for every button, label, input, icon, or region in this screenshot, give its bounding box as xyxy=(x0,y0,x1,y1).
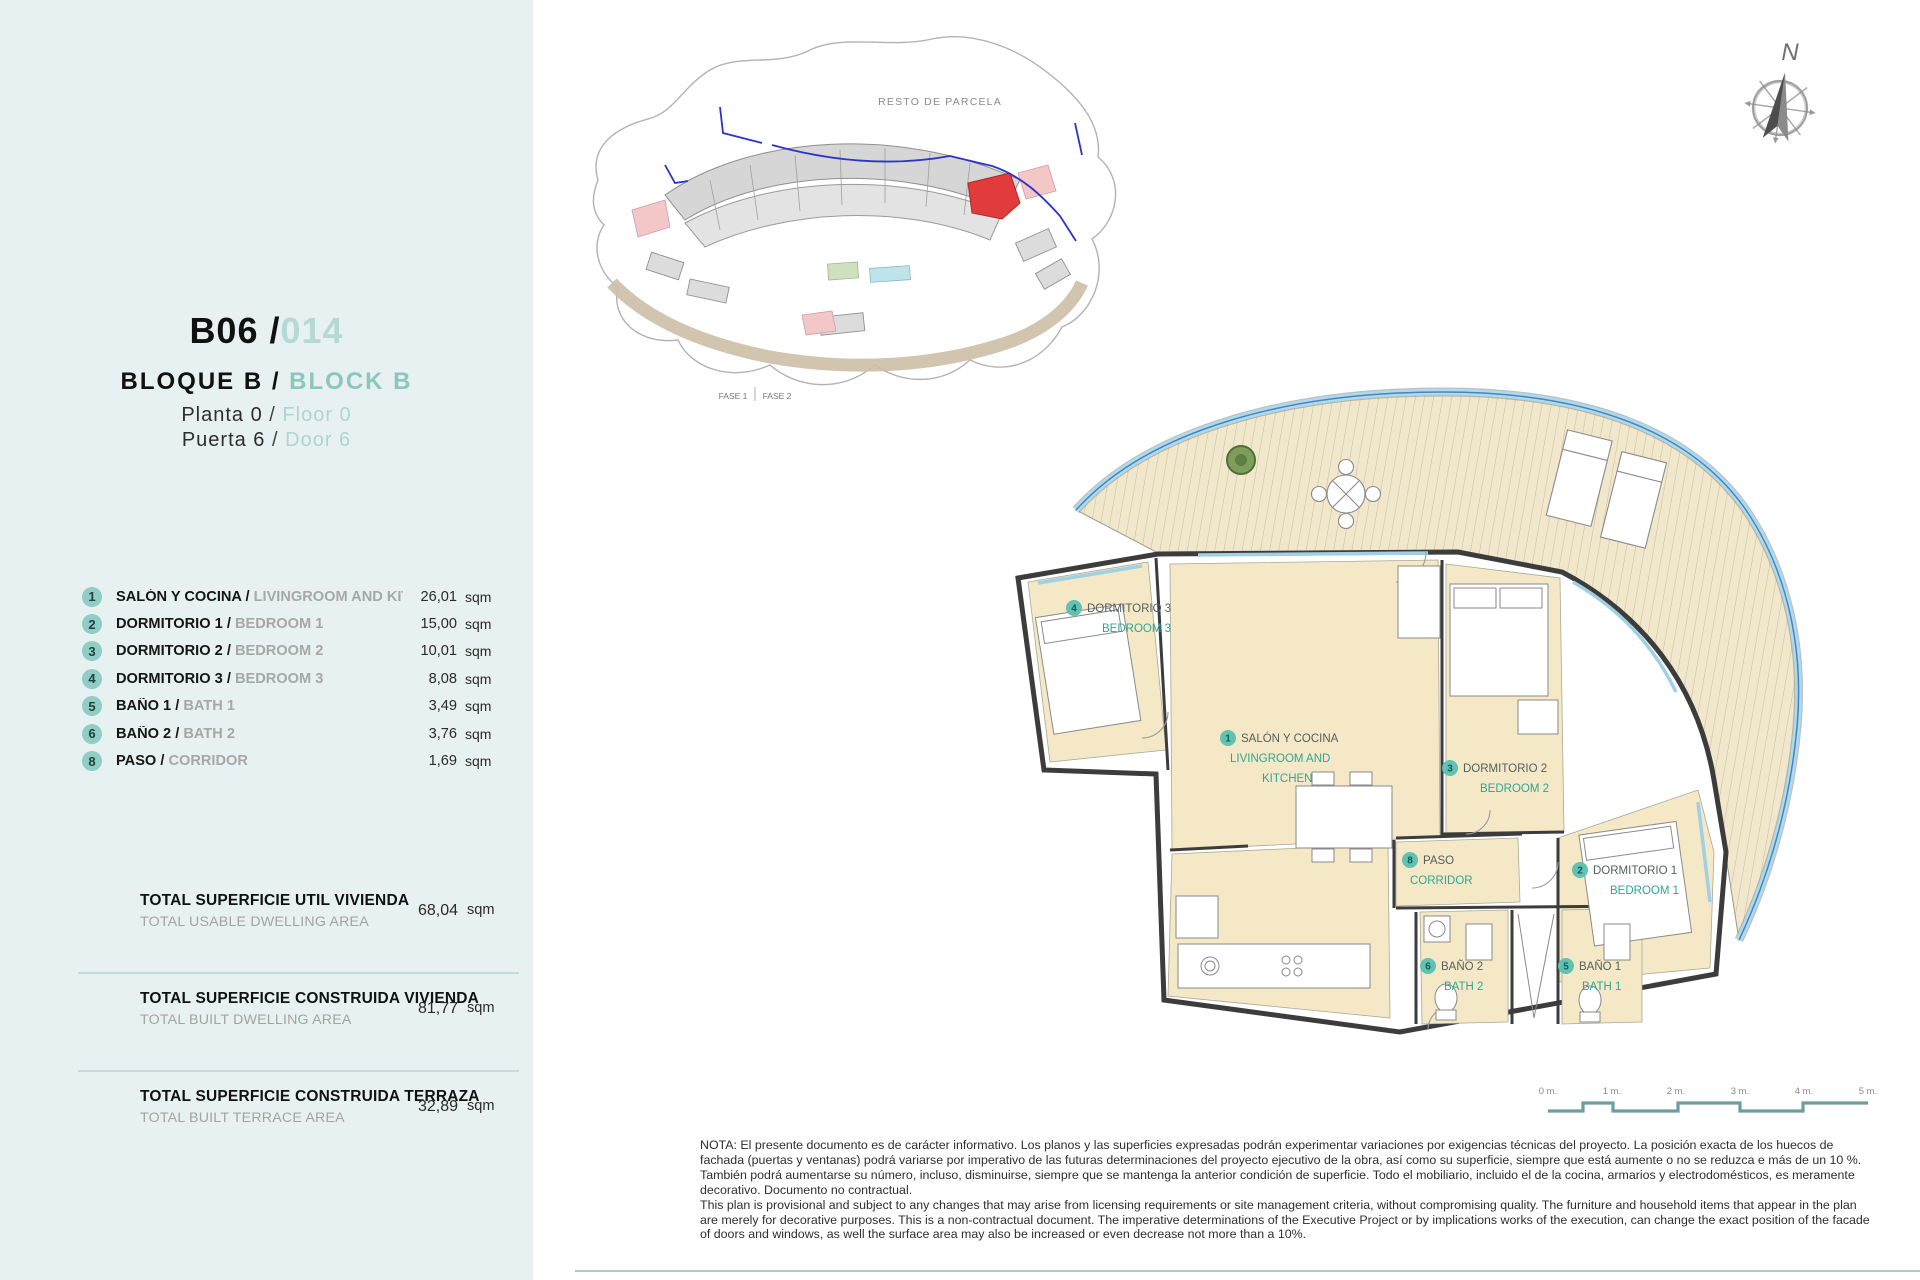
svg-text:SALÓN Y COCINA: SALÓN Y COCINA xyxy=(1241,732,1339,745)
total-usable-area: TOTAL SUPERFICIE UTIL VIVIENDA TOTAL USA… xyxy=(0,876,533,972)
room-area-value: 10,01 xyxy=(403,643,457,659)
block-es: BLOQUE B xyxy=(120,368,263,395)
north-label: N xyxy=(1781,39,1799,66)
block-line: BLOQUE B / BLOCK B xyxy=(0,368,533,396)
room-number-badge: 2 xyxy=(82,614,102,634)
info-panel: B06 /014 BLOQUE B / BLOCK B Planta 0 / F… xyxy=(0,0,533,1280)
room-name-es: PASO / xyxy=(116,753,168,769)
room-name-es: BAÑO 1 / xyxy=(116,698,183,714)
total-value-number: 32,89 xyxy=(398,1098,458,1116)
terrace-planter xyxy=(1227,446,1255,474)
door-en: Door 6 xyxy=(285,429,351,451)
room-name-es: BAÑO 2 / xyxy=(116,726,183,742)
total-built-terrace-area: TOTAL SUPERFICIE CONSTRUIDA TERRAZA TOTA… xyxy=(0,1072,533,1168)
door-es: Puerta 6 xyxy=(182,429,266,451)
svg-text:PASO: PASO xyxy=(1423,855,1454,867)
svg-text:BEDROOM 3: BEDROOM 3 xyxy=(1102,623,1171,635)
svg-text:4: 4 xyxy=(1071,604,1077,615)
total-value: 68,04 sqm xyxy=(398,902,511,920)
room-name: DORMITORIO 2 / BEDROOM 2 xyxy=(116,643,403,659)
svg-text:LIVINGROOM AND: LIVINGROOM AND xyxy=(1230,753,1330,765)
room-name-en: LIVINGROOM AND KITCHEN xyxy=(254,589,403,605)
svg-text:DORMITORIO 2: DORMITORIO 2 xyxy=(1463,763,1547,775)
bed-bedroom1 xyxy=(1579,821,1692,946)
scale-tick: 0 m. xyxy=(1539,1086,1557,1097)
compass-rose xyxy=(1739,67,1820,148)
scale-tick: 3 m. xyxy=(1731,1086,1749,1097)
svg-text:5: 5 xyxy=(1563,962,1569,973)
door-sep: / xyxy=(272,429,279,451)
svg-text:6: 6 xyxy=(1425,962,1431,973)
total-value-number: 68,04 xyxy=(398,902,458,920)
room-name: DORMITORIO 3 / BEDROOM 3 xyxy=(116,671,403,687)
room-area-value: 3,49 xyxy=(403,698,457,714)
site-pool xyxy=(870,266,911,283)
room-area-unit: sqm xyxy=(457,589,511,605)
room-name: BAÑO 2 / BATH 2 xyxy=(116,726,403,742)
total-value-unit: sqm xyxy=(458,902,511,920)
scale-tick: 2 m. xyxy=(1667,1086,1685,1097)
room-area-value: 1,69 xyxy=(403,753,457,769)
unit-code: B06 / xyxy=(189,310,280,351)
totals-section: TOTAL SUPERFICIE UTIL VIVIENDA TOTAL USA… xyxy=(0,876,533,1168)
scale-step-line xyxy=(1548,1103,1868,1111)
list-item: 2 DORMITORIO 1 / BEDROOM 1 15,00 sqm xyxy=(0,610,533,637)
svg-text:DORMITORIO 1: DORMITORIO 1 xyxy=(1593,865,1677,877)
unit-number: 014 xyxy=(280,310,343,351)
site-green xyxy=(827,262,858,280)
room-name-en: BEDROOM 3 xyxy=(235,671,323,687)
legal-note: NOTA: El presente documento es de caráct… xyxy=(700,1138,1875,1242)
legal-note-en: This plan is provisional and subject to … xyxy=(700,1198,1875,1243)
legal-note-es: NOTA: El presente documento es de caráct… xyxy=(700,1138,1875,1198)
room-name-en: BATH 1 xyxy=(183,698,235,714)
parcel-label: RESTO DE PARCELA xyxy=(878,96,1002,108)
room-area-value: 26,01 xyxy=(403,589,457,605)
scale-bar: 0 m. 1 m. 2 m. 3 m. 4 m. 5 m. xyxy=(1535,1080,1885,1122)
floor-en: Floor 0 xyxy=(282,404,351,426)
footer-rule xyxy=(575,1270,1920,1272)
scale-tick: 4 m. xyxy=(1795,1086,1813,1097)
floor-line: Planta 0 / Floor 0 xyxy=(0,404,533,427)
unit-title: B06 /014 xyxy=(0,310,533,352)
svg-text:CORRIDOR: CORRIDOR xyxy=(1410,875,1473,887)
room-area-unit: sqm xyxy=(457,726,511,742)
room-corridor xyxy=(1396,838,1520,906)
scale-tick: 1 m. xyxy=(1603,1086,1621,1097)
floor-sep: / xyxy=(269,404,276,426)
list-item: 8 PASO / CORRIDOR 1,69 sqm xyxy=(0,747,533,774)
room-area-unit: sqm xyxy=(457,698,511,714)
list-item: 4 DORMITORIO 3 / BEDROOM 3 8,08 sqm xyxy=(0,665,533,692)
block-en: BLOCK B xyxy=(289,368,412,395)
room-area-unit: sqm xyxy=(457,616,511,632)
svg-text:3: 3 xyxy=(1447,764,1453,775)
room-area-value: 8,08 xyxy=(403,671,457,687)
svg-text:BATH 1: BATH 1 xyxy=(1582,981,1621,993)
room-area-unit: sqm xyxy=(457,671,511,687)
phase1-label: FASE 1 xyxy=(719,391,748,401)
total-built-dwelling-area: TOTAL SUPERFICIE CONSTRUIDA VIVIENDA TOT… xyxy=(0,974,533,1070)
total-value-unit: sqm xyxy=(458,1000,511,1018)
room-number-badge: 5 xyxy=(82,696,102,716)
list-item: 5 BAÑO 1 / BATH 1 3,49 sqm xyxy=(0,693,533,720)
room-area-value: 3,76 xyxy=(403,726,457,742)
room-name-es: SALÓN Y COCINA / xyxy=(116,589,254,605)
room-area-value: 15,00 xyxy=(403,616,457,632)
room-number-badge: 1 xyxy=(82,587,102,607)
svg-text:8: 8 xyxy=(1407,856,1413,867)
svg-text:BEDROOM 2: BEDROOM 2 xyxy=(1480,783,1549,795)
door-line: Puerta 6 / Door 6 xyxy=(0,429,533,452)
room-area-list: 1 SALÓN Y COCINA / LIVINGROOM AND KITCHE… xyxy=(0,583,533,775)
room-name-en: BATH 2 xyxy=(183,726,235,742)
room-name: SALÓN Y COCINA / LIVINGROOM AND KITCHEN xyxy=(116,589,403,605)
room-name-es: DORMITORIO 1 / xyxy=(116,616,235,632)
phase2-label: FASE 2 xyxy=(763,391,792,401)
room-name: BAÑO 1 / BATH 1 xyxy=(116,698,403,714)
block-sep: / xyxy=(272,368,281,395)
room-name-en: CORRIDOR xyxy=(168,753,247,769)
total-value-number: 81,77 xyxy=(398,1000,458,1018)
list-item: 3 DORMITORIO 2 / BEDROOM 2 10,01 sqm xyxy=(0,638,533,665)
room-number-badge: 6 xyxy=(82,724,102,744)
svg-text:BATH 2: BATH 2 xyxy=(1444,981,1483,993)
room-area-unit: sqm xyxy=(457,643,511,659)
list-item: 1 SALÓN Y COCINA / LIVINGROOM AND KITCHE… xyxy=(0,583,533,610)
room-name: DORMITORIO 1 / BEDROOM 1 xyxy=(116,616,403,632)
room-number-badge: 3 xyxy=(82,641,102,661)
svg-text:KITCHEN: KITCHEN xyxy=(1262,773,1312,785)
room-name-en: BEDROOM 1 xyxy=(235,616,323,632)
brochure-page: B06 /014 BLOQUE B / BLOCK B Planta 0 / F… xyxy=(0,0,1920,1280)
room-number-badge: 4 xyxy=(82,669,102,689)
svg-text:DORMITORIO 3: DORMITORIO 3 xyxy=(1087,603,1171,615)
room-area-unit: sqm xyxy=(457,753,511,769)
svg-text:BAÑO 1: BAÑO 1 xyxy=(1579,960,1621,973)
apartment-floor-plan: 4 DORMITORIO 3 BEDROOM 3 1 SALÓN Y COCIN… xyxy=(998,382,1818,1062)
svg-text:1: 1 xyxy=(1225,734,1231,745)
room-name: PASO / CORRIDOR xyxy=(116,753,403,769)
site-plan: RESTO DE PARCELA FASE 1 FASE 2 xyxy=(570,15,1130,415)
dining-table xyxy=(1296,772,1392,862)
room-number-badge: 8 xyxy=(82,751,102,771)
room-name-en: BEDROOM 2 xyxy=(235,643,323,659)
scale-tick: 5 m. xyxy=(1859,1086,1877,1097)
total-value-unit: sqm xyxy=(458,1098,511,1116)
room-name-es: DORMITORIO 3 / xyxy=(116,671,235,687)
svg-text:BEDROOM 1: BEDROOM 1 xyxy=(1610,885,1679,897)
total-value: 81,77 sqm xyxy=(398,1000,511,1018)
room-name-es: DORMITORIO 2 / xyxy=(116,643,235,659)
svg-text:BAÑO 2: BAÑO 2 xyxy=(1441,960,1483,973)
floor-es: Planta 0 xyxy=(181,404,262,426)
total-value: 32,89 sqm xyxy=(398,1098,511,1116)
list-item: 6 BAÑO 2 / BATH 2 3,76 sqm xyxy=(0,720,533,747)
svg-text:2: 2 xyxy=(1577,866,1583,877)
north-compass: N xyxy=(1728,30,1838,160)
